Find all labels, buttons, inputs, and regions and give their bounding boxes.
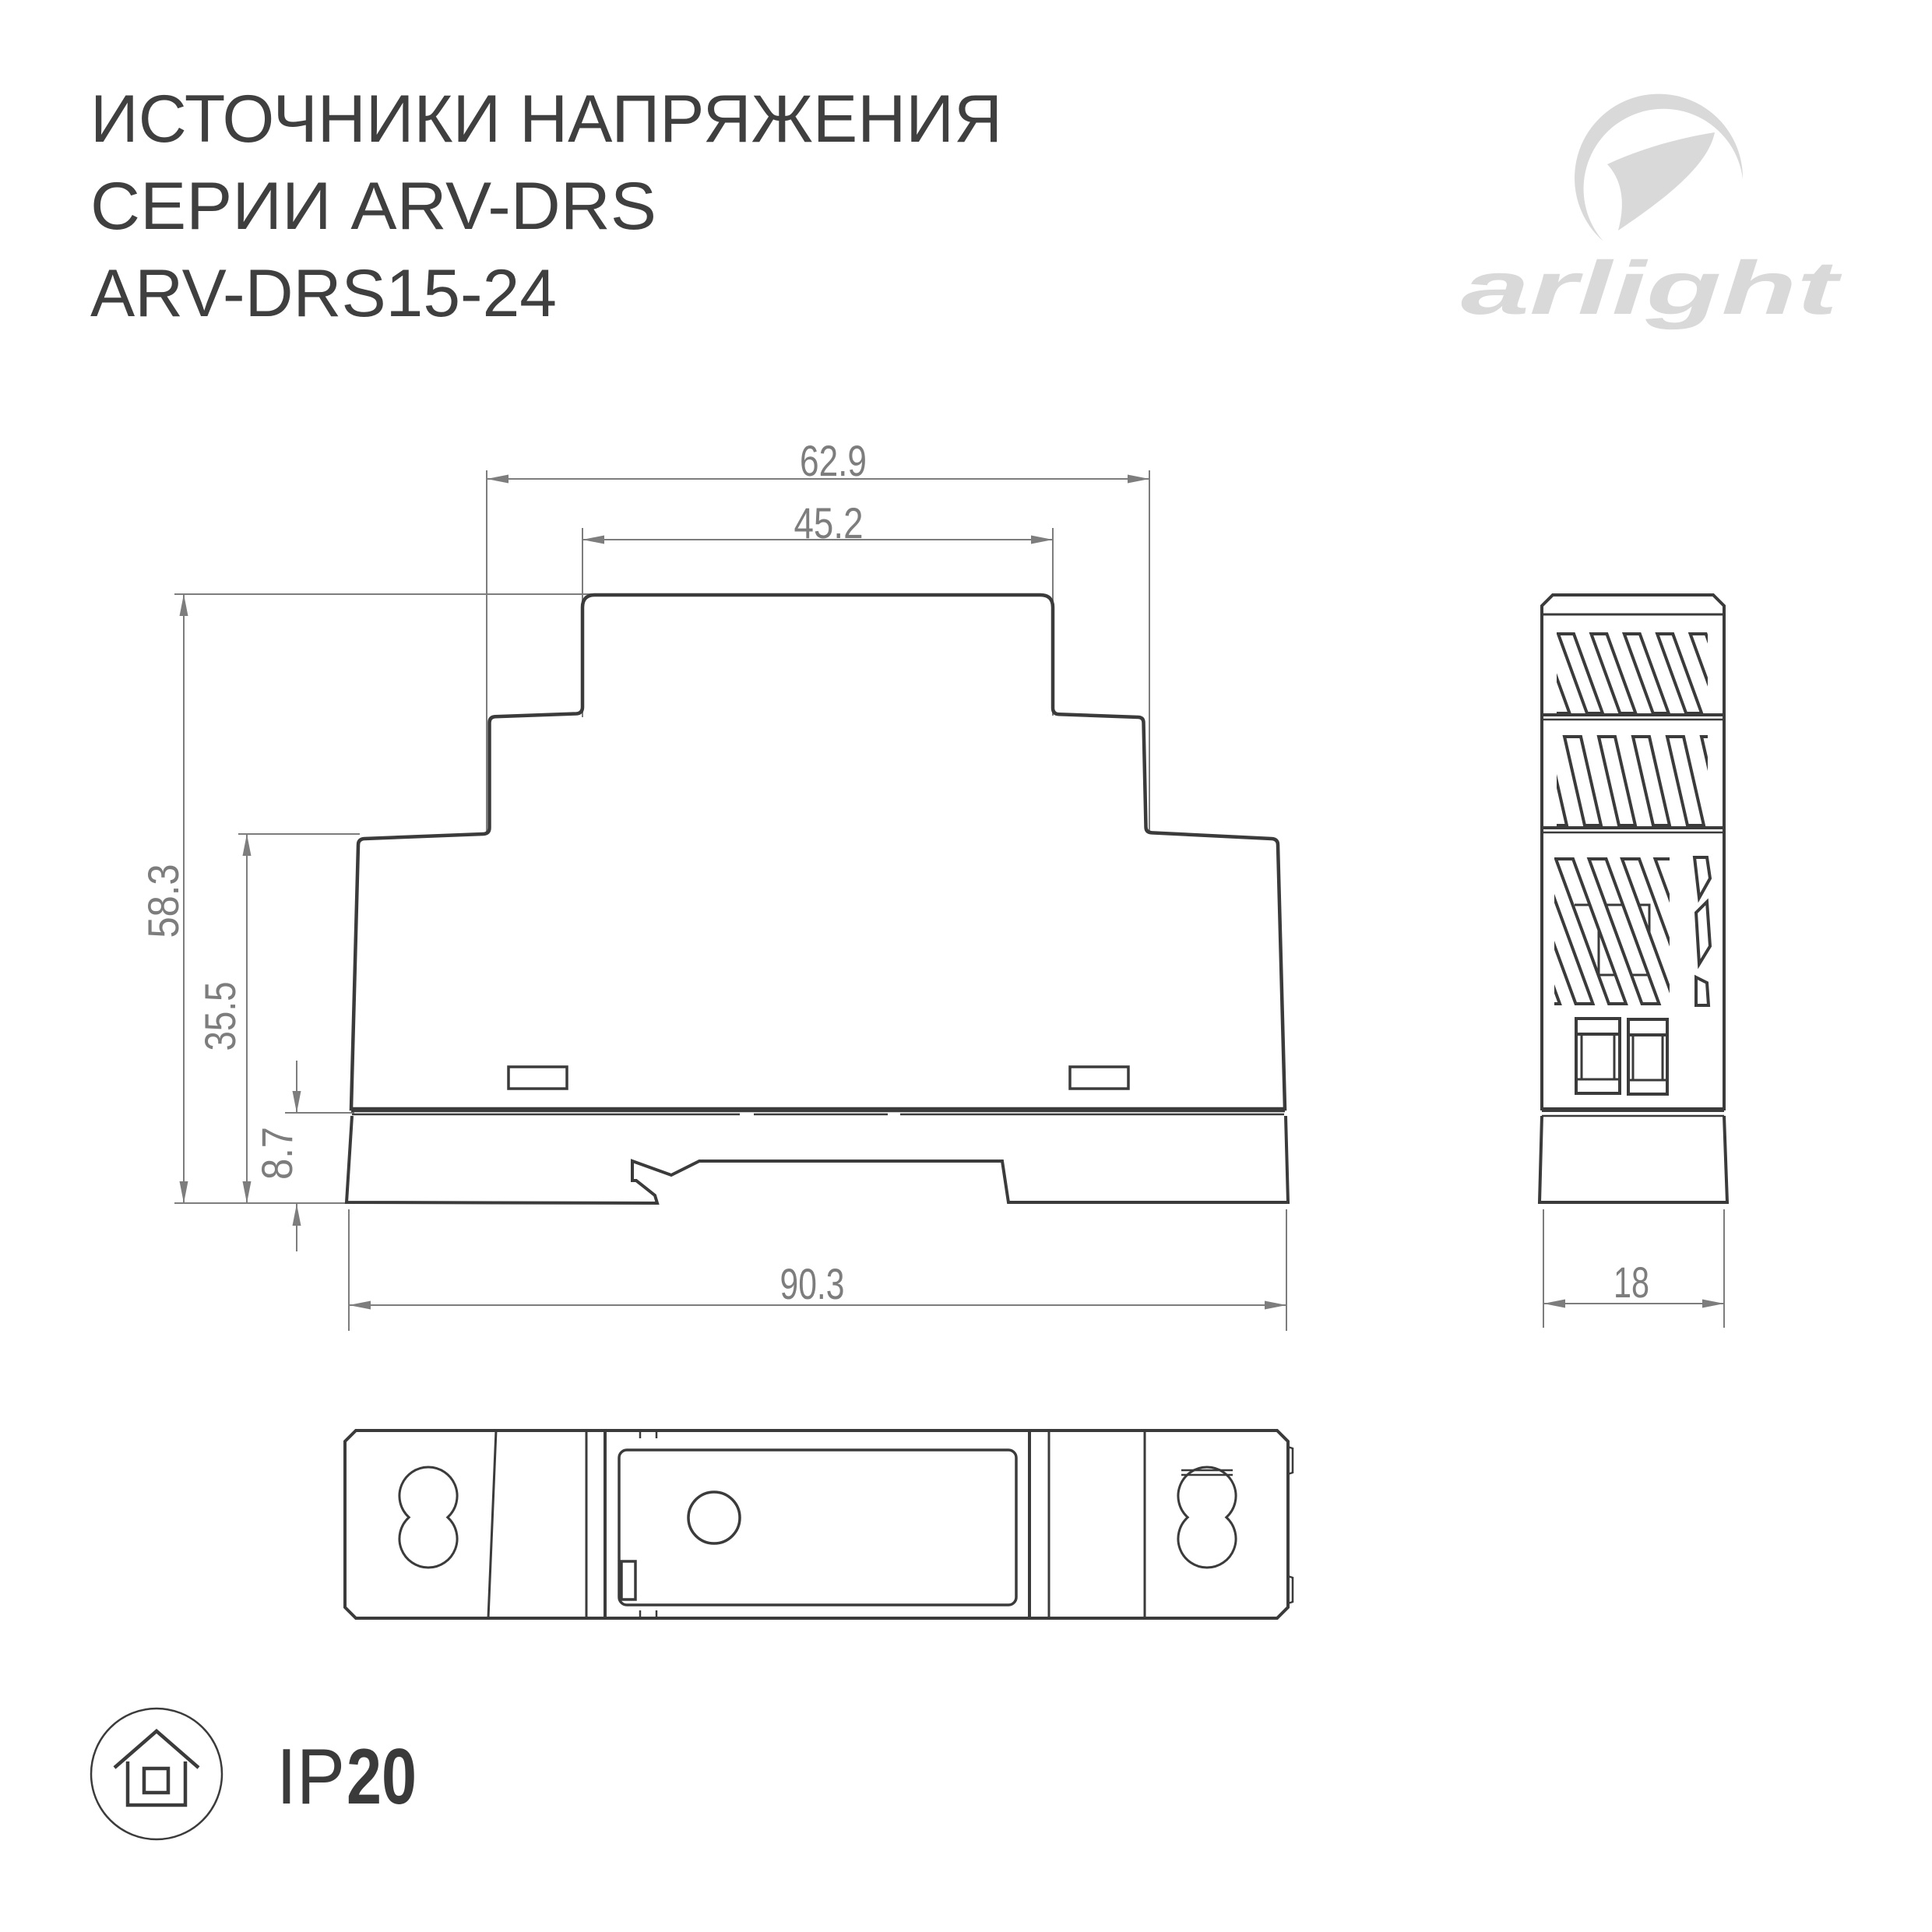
svg-text:IP20: IP20: [276, 1733, 417, 1821]
svg-text:18: 18: [1614, 1258, 1649, 1307]
svg-text:45.2: 45.2: [794, 498, 864, 547]
svg-text:62.9: 62.9: [800, 436, 867, 485]
svg-text:8.7: 8.7: [252, 1127, 301, 1180]
svg-text:35.5: 35.5: [195, 982, 245, 1051]
svg-text:СЕРИИ ARV-DRS: СЕРИИ ARV-DRS: [90, 169, 656, 244]
svg-text:58.3: 58.3: [139, 864, 188, 938]
svg-text:arlight: arlight: [1461, 245, 1842, 330]
svg-text:90.3: 90.3: [780, 1259, 845, 1308]
svg-text:ARV-DRS15-24: ARV-DRS15-24: [90, 256, 557, 331]
svg-text:ИСТОЧНИКИ НАПРЯЖЕНИЯ: ИСТОЧНИКИ НАПРЯЖЕНИЯ: [90, 82, 1002, 157]
